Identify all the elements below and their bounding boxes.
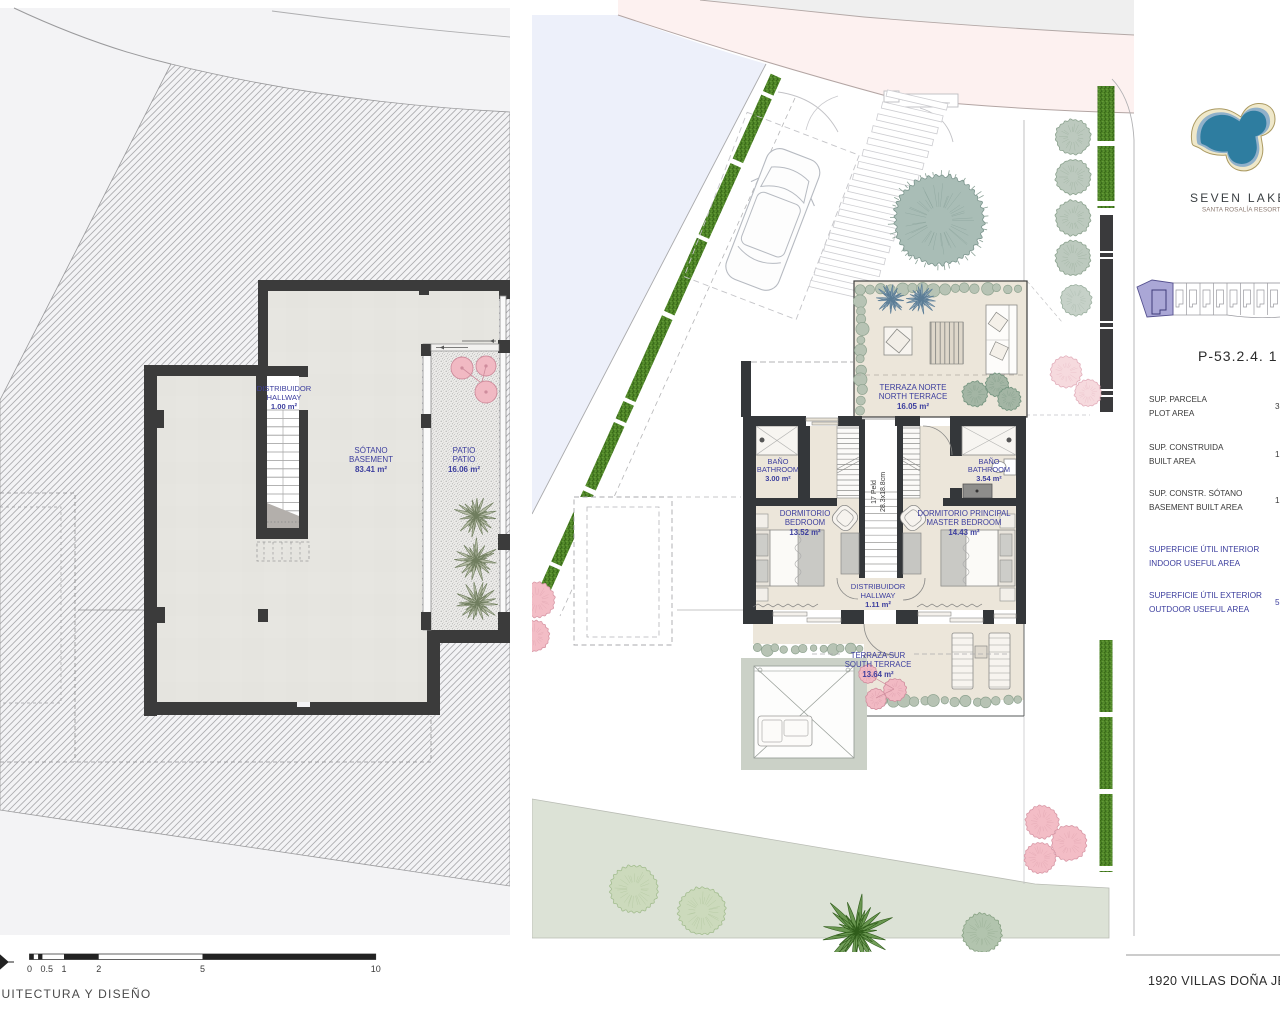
- svg-text:PLOT AREA: PLOT AREA: [1149, 409, 1195, 418]
- svg-text:0: 0: [27, 964, 32, 974]
- svg-text:NORTH TERRACE: NORTH TERRACE: [879, 392, 948, 401]
- svg-text:HALLWAY: HALLWAY: [267, 393, 302, 402]
- svg-text:1: 1: [61, 964, 66, 974]
- svg-text:83.41 m²: 83.41 m²: [355, 465, 387, 474]
- svg-text:16.05 m²: 16.05 m²: [897, 402, 929, 411]
- svg-text:SOUTH TERRACE: SOUTH TERRACE: [845, 660, 912, 669]
- svg-text:14.43 m²: 14.43 m²: [948, 528, 980, 537]
- svg-text:MASTER BEDROOM: MASTER BEDROOM: [927, 518, 1002, 527]
- svg-text:PATIO: PATIO: [453, 455, 476, 464]
- svg-text:QUITECTURA Y DISEÑO: QUITECTURA Y DISEÑO: [0, 987, 151, 1001]
- svg-text:5: 5: [200, 964, 205, 974]
- svg-text:DISTRIBUIDOR: DISTRIBUIDOR: [257, 384, 312, 393]
- svg-text:SUPERFICIE ÚTIL INTERIOR: SUPERFICIE ÚTIL INTERIOR: [1149, 544, 1259, 554]
- svg-text:DISTRIBUIDOR: DISTRIBUIDOR: [851, 582, 906, 591]
- svg-text:1920 VILLAS DOÑA JE: 1920 VILLAS DOÑA JE: [1148, 974, 1280, 988]
- svg-text:2: 2: [96, 964, 101, 974]
- svg-text:HALLWAY: HALLWAY: [861, 591, 896, 600]
- svg-text:TERRAZA SUR: TERRAZA SUR: [851, 651, 906, 660]
- svg-text:1.11 m²: 1.11 m²: [865, 600, 891, 609]
- svg-text:PATIO: PATIO: [453, 446, 476, 455]
- svg-text:BEDROOM: BEDROOM: [785, 518, 825, 527]
- svg-text:BASEMENT: BASEMENT: [349, 455, 393, 464]
- svg-text:SANTA ROSALÍA RESORT: SANTA ROSALÍA RESORT: [1202, 205, 1280, 214]
- svg-text:3: 3: [1275, 402, 1280, 411]
- svg-text:28.3x18.8cm: 28.3x18.8cm: [880, 472, 887, 512]
- svg-text:BATHROOM: BATHROOM: [757, 465, 799, 474]
- svg-text:3.54 m²: 3.54 m²: [976, 474, 1002, 483]
- svg-text:TERRAZA NORTE: TERRAZA NORTE: [880, 383, 947, 392]
- svg-text:BATHROOM: BATHROOM: [968, 465, 1010, 474]
- svg-text:DORMITORIO PRINCIPAL: DORMITORIO PRINCIPAL: [917, 509, 1011, 518]
- svg-text:SUP. CONSTR. SÓTANO: SUP. CONSTR. SÓTANO: [1149, 488, 1242, 498]
- svg-text:SUPERFICIE ÚTIL EXTERIOR: SUPERFICIE ÚTIL EXTERIOR: [1149, 590, 1262, 600]
- svg-text:1.00 m²: 1.00 m²: [271, 402, 298, 411]
- svg-text:SÓTANO: SÓTANO: [354, 446, 387, 455]
- svg-text:BUILT AREA: BUILT AREA: [1149, 457, 1196, 466]
- svg-text:17 Peld: 17 Peld: [871, 480, 878, 504]
- svg-text:16.06 m²: 16.06 m²: [448, 465, 480, 474]
- svg-text:1: 1: [1275, 450, 1280, 459]
- svg-text:BASEMENT BUILT AREA: BASEMENT BUILT AREA: [1149, 503, 1243, 512]
- svg-text:INDOOR USEFUL AREA: INDOOR USEFUL AREA: [1149, 559, 1241, 568]
- svg-text:SUP. PARCELA: SUP. PARCELA: [1149, 395, 1207, 404]
- svg-text:1: 1: [1275, 496, 1280, 505]
- svg-text:DORMITORIO: DORMITORIO: [780, 509, 831, 518]
- svg-text:3.00 m²: 3.00 m²: [765, 474, 791, 483]
- svg-text:13.64 m²: 13.64 m²: [862, 670, 894, 679]
- svg-text:SEVEN LAKES: SEVEN LAKES: [1190, 191, 1280, 205]
- svg-text:SUP. CONSTRUIDA: SUP. CONSTRUIDA: [1149, 443, 1224, 452]
- svg-text:0.5: 0.5: [41, 964, 54, 974]
- svg-text:OUTDOOR USEFUL AREA: OUTDOOR USEFUL AREA: [1149, 605, 1250, 614]
- svg-text:5: 5: [1275, 598, 1280, 607]
- svg-text:13.52 m²: 13.52 m²: [789, 528, 821, 537]
- svg-text:P-53.2.4. 1: P-53.2.4. 1: [1198, 348, 1278, 364]
- svg-text:10: 10: [371, 964, 381, 974]
